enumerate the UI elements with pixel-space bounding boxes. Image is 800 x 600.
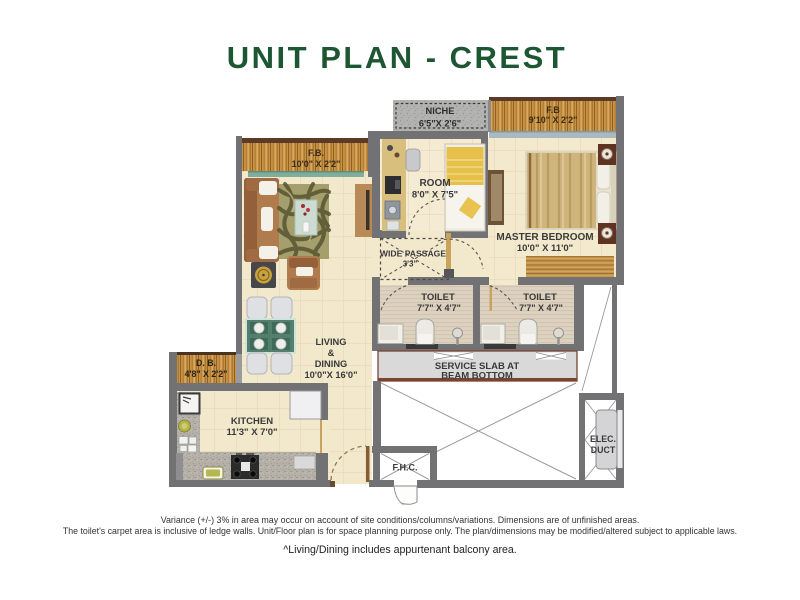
svg-text:10'0"X 16'0": 10'0"X 16'0" <box>304 370 357 380</box>
svg-text:WIDE PASSAGE: WIDE PASSAGE <box>380 249 446 259</box>
svg-text:7'7" X 4'7": 7'7" X 4'7" <box>519 303 563 313</box>
svg-text:3'3": 3'3" <box>403 260 418 269</box>
svg-text:9'10" X 2'2": 9'10" X 2'2" <box>529 115 578 125</box>
svg-text:LIVING: LIVING <box>316 337 347 347</box>
svg-text:F.H.C.: F.H.C. <box>392 463 417 473</box>
svg-text:7'7" X 4'7": 7'7" X 4'7" <box>417 303 461 313</box>
svg-text:DINING: DINING <box>315 359 348 369</box>
svg-text:DUCT: DUCT <box>591 445 616 455</box>
svg-text:11'3" X 7'0": 11'3" X 7'0" <box>226 427 277 438</box>
svg-text:The toilet's carpet area is in: The toilet's carpet area is inclusive of… <box>63 526 737 536</box>
svg-text:KITCHEN: KITCHEN <box>231 416 273 427</box>
svg-text:NICHE: NICHE <box>426 106 455 116</box>
svg-text:TOILET: TOILET <box>523 292 557 303</box>
svg-text:10'0" X 11'0": 10'0" X 11'0" <box>517 243 573 254</box>
svg-text:6'5"X 2'6": 6'5"X 2'6" <box>419 119 461 129</box>
svg-text:F.B.: F.B. <box>308 148 324 158</box>
svg-text:8'0" X 7'5": 8'0" X 7'5" <box>412 190 458 201</box>
svg-text:D. B.: D. B. <box>196 358 216 368</box>
svg-text:ELEC.: ELEC. <box>590 434 616 444</box>
svg-text:UNIT PLAN - CREST: UNIT PLAN - CREST <box>227 40 567 75</box>
svg-text:Variance (+/-) 3% in area may: Variance (+/-) 3% in area may occur on a… <box>161 515 640 525</box>
svg-text:BEAM BOTTOM: BEAM BOTTOM <box>441 371 513 382</box>
svg-text:4'8" X 2'2": 4'8" X 2'2" <box>185 369 228 379</box>
svg-text:ROOM: ROOM <box>419 178 450 189</box>
svg-text:F.B: F.B <box>546 105 560 115</box>
svg-text:^Living/Dining includes appurt: ^Living/Dining includes appurtenant balc… <box>283 544 516 556</box>
svg-text:TOILET: TOILET <box>421 292 455 303</box>
svg-text:&: & <box>328 348 335 358</box>
svg-text:MASTER BEDROOM: MASTER BEDROOM <box>496 232 593 243</box>
svg-text:10'0" X 2'2": 10'0" X 2'2" <box>292 159 341 169</box>
